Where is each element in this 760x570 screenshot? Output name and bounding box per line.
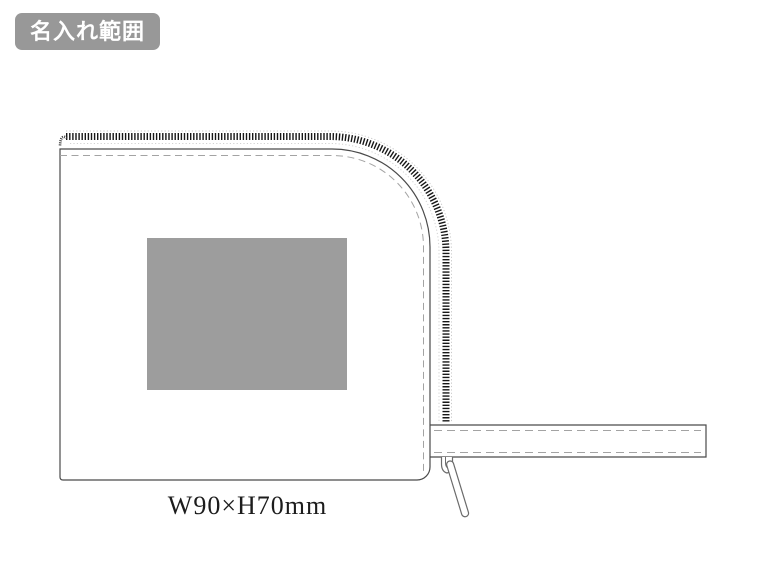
screenshot-stage: 名入れ範囲 W90×H70mm [0, 0, 760, 570]
zipper-pull [446, 460, 470, 518]
imprint-dimensions-label: W90×H70mm [155, 491, 340, 521]
imprint-area [147, 238, 347, 390]
pouch-diagram [0, 0, 760, 570]
zipper-pull-handle [446, 460, 470, 518]
zipper-tape-end-curl [60, 137, 67, 146]
